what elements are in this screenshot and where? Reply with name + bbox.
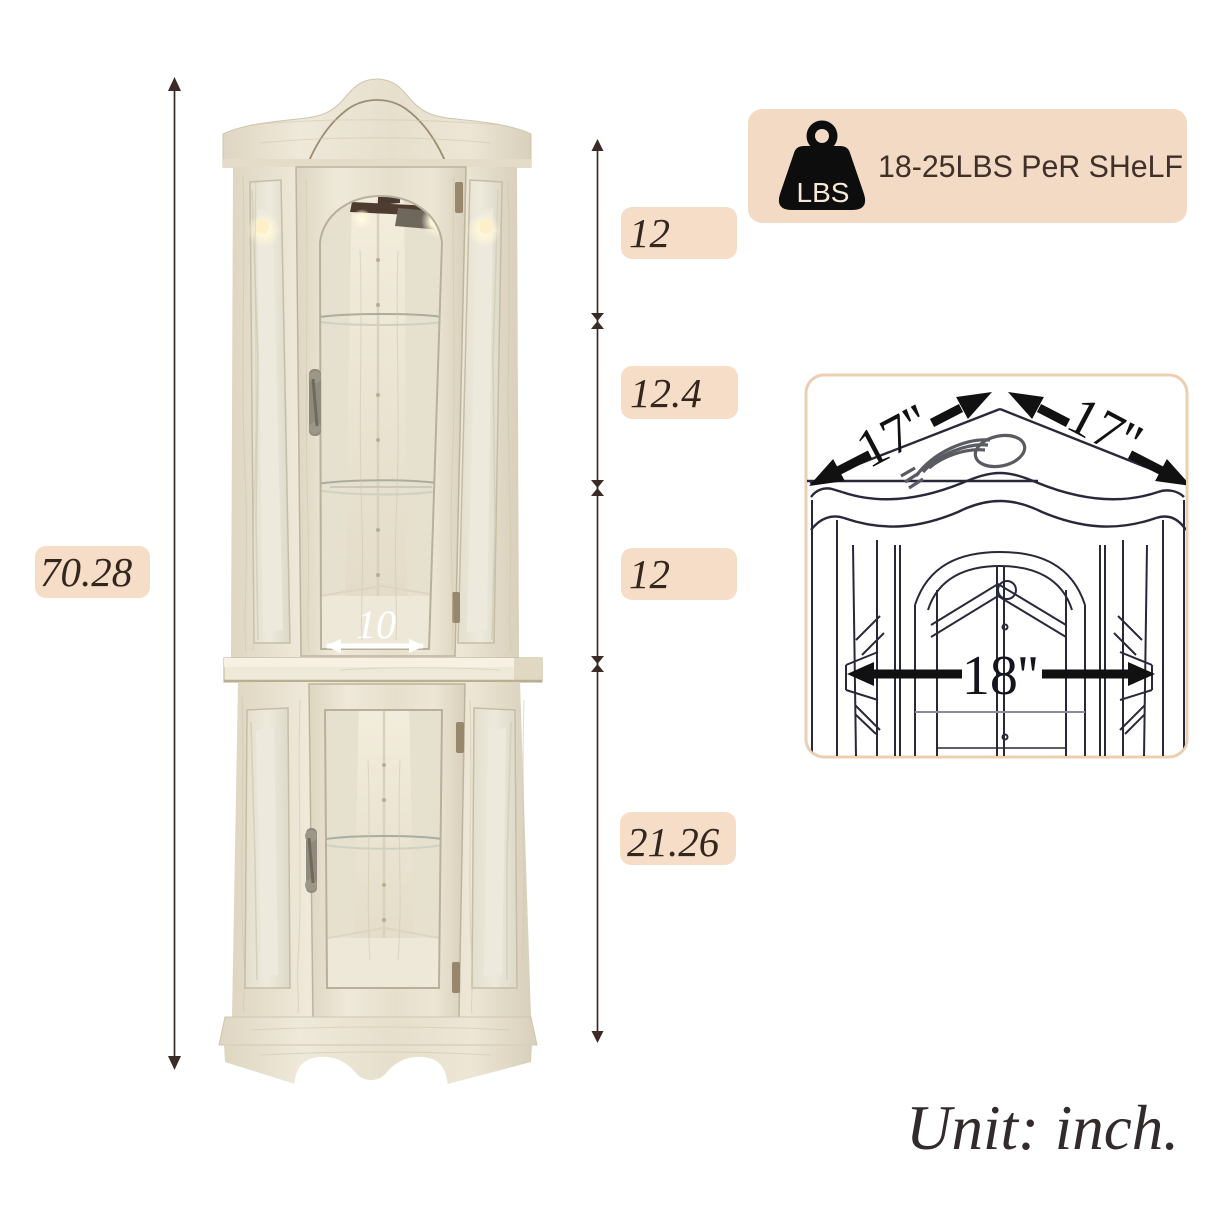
svg-text:18-25LBS PeR SHeLF: 18-25LBS PeR SHeLF <box>878 148 1183 184</box>
svg-text:70.28: 70.28 <box>40 549 133 595</box>
svg-text:12: 12 <box>629 551 670 597</box>
svg-text:18'': 18'' <box>962 645 1038 707</box>
svg-text:12: 12 <box>629 210 670 256</box>
svg-text:Unit: inch.: Unit: inch. <box>906 1093 1179 1163</box>
svg-text:LBS: LBS <box>797 177 850 208</box>
svg-text:21.26: 21.26 <box>627 819 720 865</box>
svg-text:12.4: 12.4 <box>630 370 702 416</box>
